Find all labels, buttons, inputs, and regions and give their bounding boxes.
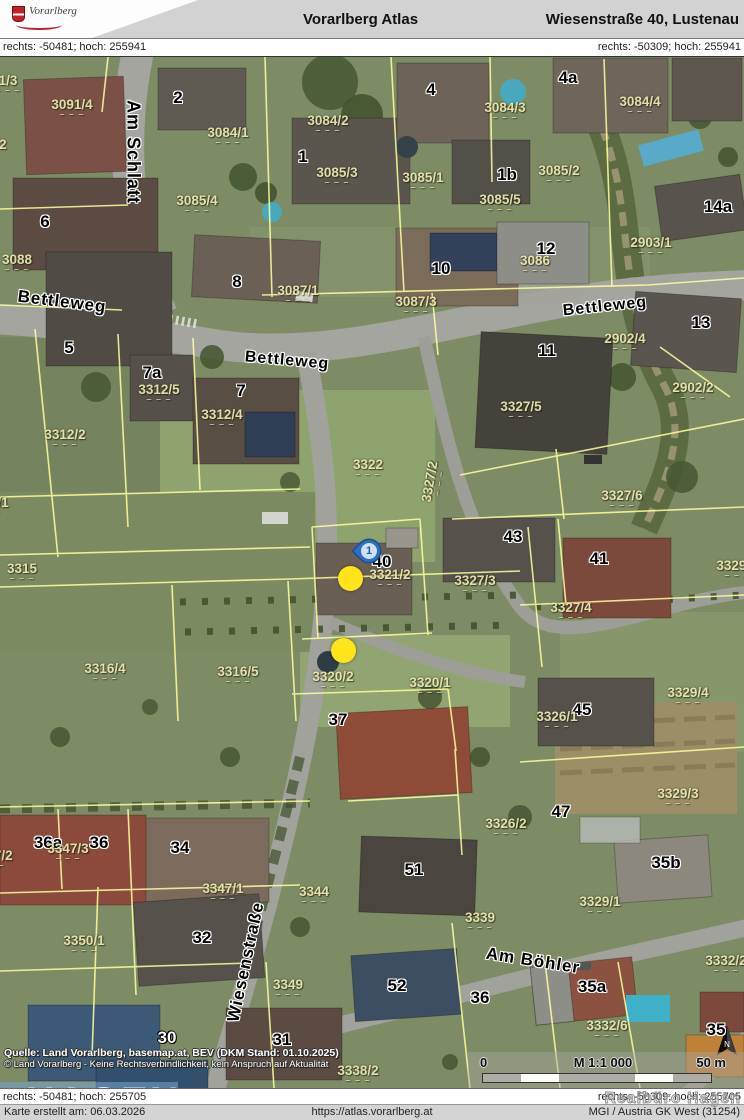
attribution-source: Quelle: Land Vorarlberg, basemap.at, BEV… [4, 1047, 339, 1059]
aerial-imagery: N [0, 57, 744, 1088]
vorarlberg-shield-icon [12, 6, 25, 22]
svg-text:N: N [724, 1040, 730, 1049]
scale-distance-label: 50 m [696, 1055, 726, 1070]
header-bar: Vorarlberg Vorarlberg Atlas Wiesenstraße… [0, 0, 744, 39]
vorarlberg-logo-text: Vorarlberg [29, 6, 77, 17]
hagen-logo-title: HAGEN [26, 1080, 180, 1088]
coord-top-right: rechts: -50309; hoch: 255941 [598, 41, 741, 53]
coord-top-left: rechts: -50481; hoch: 255941 [3, 41, 146, 53]
scale-bar: 0 M 1:1 000 50 m [468, 1052, 744, 1088]
vorarlberg-atlas-window: { "header": { "app_title": "Vorarlberg A… [0, 0, 744, 1120]
vorarlberg-logo: Vorarlberg [0, 0, 205, 38]
scale-bar-segments [482, 1073, 712, 1083]
map-canvas[interactable]: N Am SchlattBettlewegBettlewegBettlewegW… [0, 57, 744, 1088]
realbuero-watermark: Realbüro Hagen [604, 1090, 741, 1108]
coordinate-bar-top: rechts: -50481; hoch: 255941 rechts: -50… [0, 39, 744, 57]
map-attribution: Quelle: Land Vorarlberg, basemap.at, BEV… [4, 1047, 339, 1070]
app-title: Vorarlberg Atlas [303, 11, 418, 28]
scale-ratio-label: M 1:1 000 [480, 1055, 726, 1070]
attribution-disclaimer: © Land Vorarlberg - Keine Rechtsverbindl… [4, 1059, 339, 1070]
highlight-dot-2 [331, 638, 356, 663]
highlight-dot-1 [338, 566, 363, 591]
pin-label: 1 [361, 543, 377, 559]
page-title-address: Wiesenstraße 40, Lustenau [546, 11, 739, 28]
coord-bottom-left: rechts: -50481; hoch: 255705 [3, 1091, 146, 1103]
logo-swash [16, 20, 62, 30]
map-marker-pin[interactable]: 1 [355, 538, 383, 568]
